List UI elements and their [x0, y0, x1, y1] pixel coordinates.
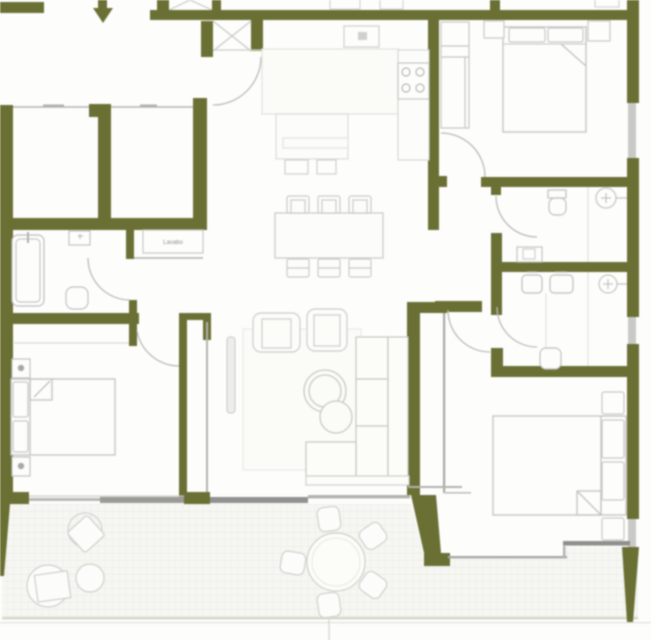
- svg-text:Lavabo: Lavabo: [163, 240, 183, 246]
